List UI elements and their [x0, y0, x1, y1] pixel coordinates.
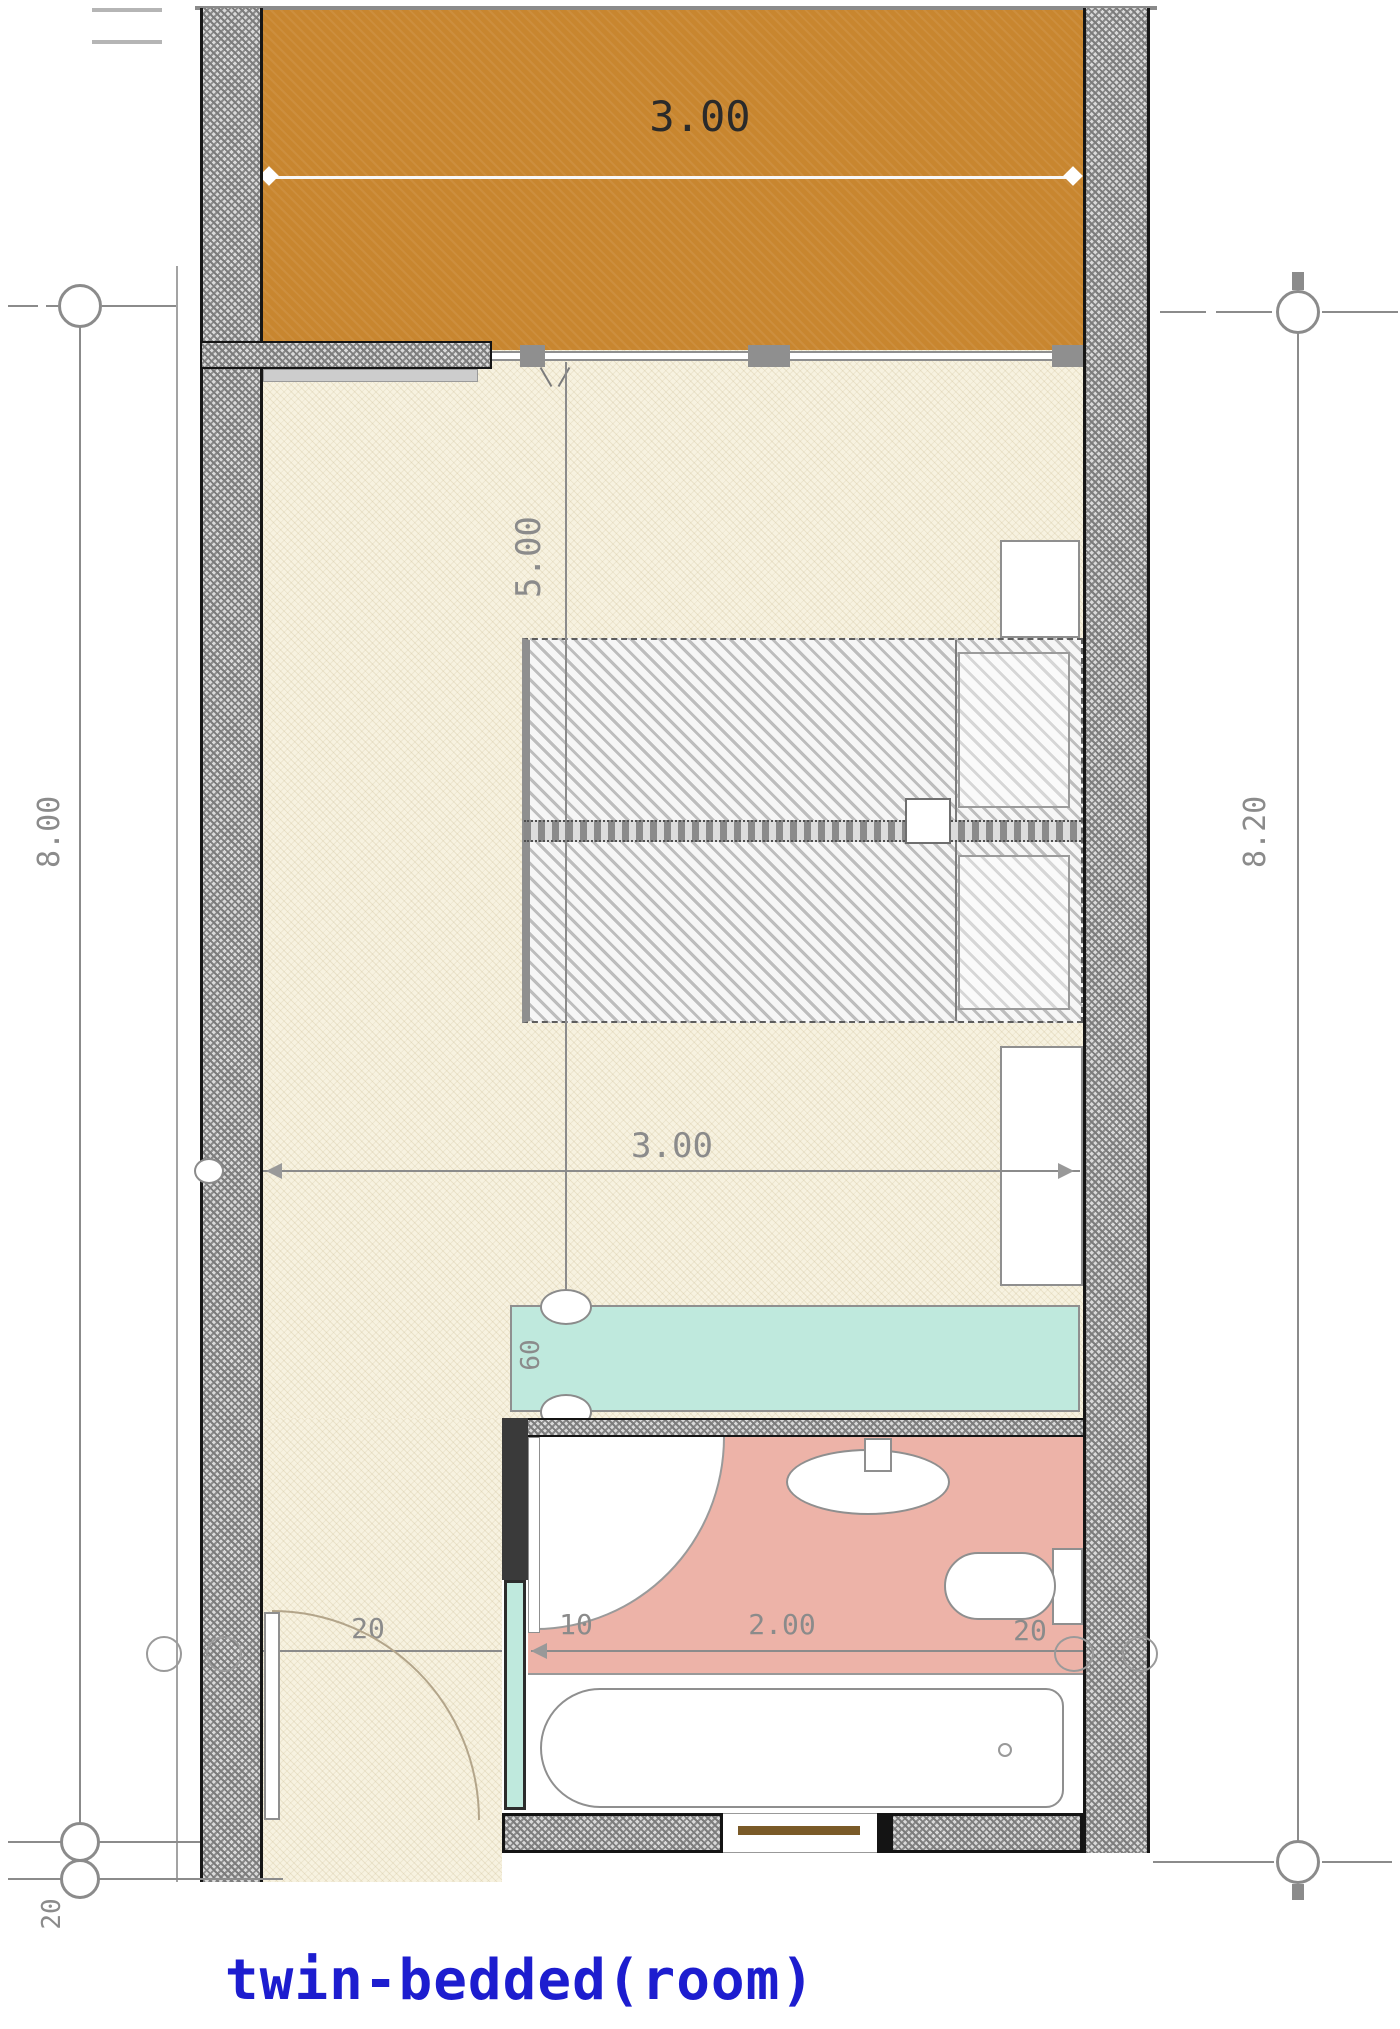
right-dim-line — [1297, 312, 1299, 1862]
bottom-wall-label: 20 — [12, 1884, 92, 1944]
wardrobe-closet — [510, 1305, 1080, 1412]
bath-dim-line — [531, 1650, 1083, 1652]
bath-dim-wall-marker-outer — [1122, 1636, 1158, 1672]
right-grid-bottom-line-right — [1322, 1861, 1392, 1863]
closet-dim-marker-top — [540, 1289, 592, 1325]
bath-door-label: 10 — [548, 1608, 604, 1641]
page-title: twin-bedded(room) — [0, 1948, 1040, 2013]
sink-faucet — [864, 1438, 892, 1472]
toilet-bowl — [944, 1552, 1056, 1620]
balcony-dim-line — [270, 176, 1078, 179]
right-grid-dash-left-2 — [1216, 311, 1272, 313]
bath-dim-arrow-left — [531, 1643, 547, 1659]
right-overall-label: 8.20 — [1196, 796, 1316, 868]
right-grid-circle-bottom — [1276, 1840, 1320, 1884]
left-grid-line-right — [102, 305, 176, 307]
left-wall — [200, 8, 263, 1882]
bottom-wall-threshold — [738, 1826, 860, 1835]
bathroom-door-leaf — [528, 1437, 540, 1633]
bath-right-label: 20 — [1000, 1614, 1060, 1647]
left-grid-circle-bottom-1 — [60, 1822, 100, 1862]
left-grid-dash-2 — [46, 305, 58, 307]
closet-depth-label: 60 — [501, 1330, 561, 1380]
room-width-label: 3.00 — [592, 1126, 752, 1166]
bath-dim-wall-marker-inner — [1054, 1636, 1094, 1672]
tick-top-left-1 — [92, 8, 162, 12]
balcony-parapet-ledge — [263, 369, 478, 382]
bathtub-basin — [540, 1688, 1064, 1808]
bath-width-label: 2.00 — [722, 1608, 842, 1641]
right-grid-tick-top — [1292, 272, 1304, 290]
right-wall — [1083, 8, 1150, 1853]
left-wall-outer-face-line — [176, 266, 178, 1882]
bottom-left-ext-line-2 — [8, 1878, 283, 1880]
tick-top-left-2 — [92, 40, 162, 44]
room-width-wall-marker — [194, 1158, 224, 1184]
room-width-arrow-right — [1058, 1163, 1074, 1179]
right-grid-circle-top — [1276, 290, 1320, 334]
bathtub-drain — [998, 1743, 1012, 1757]
window-mullion-3 — [1052, 345, 1083, 367]
bottom-left-ext-line-1 — [8, 1841, 200, 1843]
bathroom-top-wall — [502, 1418, 1083, 1437]
room-width-arrow-left — [266, 1163, 282, 1179]
left-grid-circle-top — [58, 284, 102, 328]
balcony-width-label: 3.00 — [600, 92, 800, 141]
left-overall-label: 8.00 — [0, 796, 110, 868]
beds-gap-band — [524, 820, 1081, 842]
floor-plan: 3.00 5.00 3.00 60 — [0, 0, 1400, 2029]
window-mullion-1 — [520, 345, 545, 367]
room-length-label: 5.00 — [469, 518, 589, 598]
balcony — [263, 10, 1083, 350]
right-grid-tick-bottom — [1292, 1884, 1304, 1900]
beds-center-notch — [905, 798, 951, 844]
entry-bath-glazed-partition — [504, 1580, 526, 1810]
right-grid-line-right — [1322, 311, 1398, 313]
balcony-parapet-wall — [200, 341, 492, 369]
entry-door-leaf — [264, 1612, 280, 1820]
room-length-dim-line — [565, 362, 567, 1307]
right-grid-dash-left-1 — [1160, 311, 1206, 313]
bed2-pillow — [958, 855, 1070, 1010]
entry-dim-wall-marker-outer — [146, 1636, 182, 1672]
entry-dim-wall-marker-inner — [206, 1636, 242, 1672]
left-grid-dash-1 — [8, 305, 38, 307]
bottom-wall-left-segment — [502, 1813, 723, 1853]
left-dim-line — [79, 306, 81, 1879]
window-mullion-2 — [748, 345, 790, 367]
right-grid-bottom-line-left — [1153, 1861, 1274, 1863]
nightstand — [1000, 540, 1080, 638]
bed1-pillow — [958, 652, 1070, 808]
bottom-wall-jamb — [877, 1813, 890, 1853]
room-width-dim-line — [263, 1170, 1080, 1172]
bottom-wall-right-segment — [890, 1813, 1083, 1853]
entry-bath-wall-upper — [502, 1418, 528, 1580]
